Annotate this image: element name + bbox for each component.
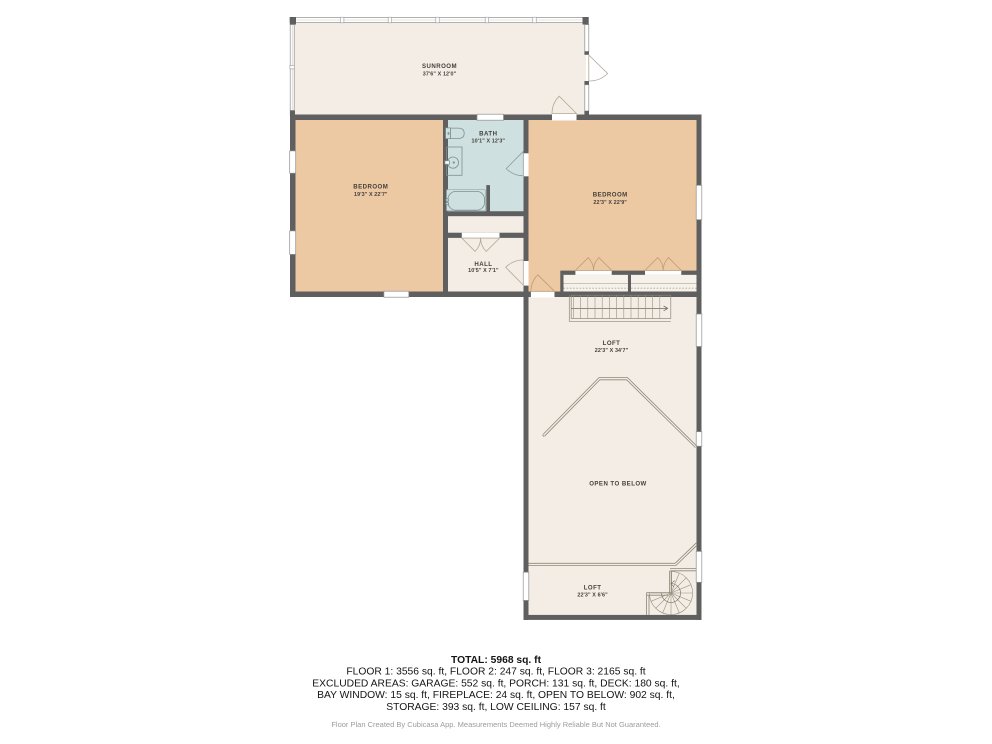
svg-text:10'1" X 12'3": 10'1" X 12'3" xyxy=(472,139,506,145)
svg-text:BAY WINDOW: 15 sq. ft, FIREPLA: BAY WINDOW: 15 sq. ft, FIREPLACE: 24 sq.… xyxy=(317,690,675,701)
svg-text:OPEN TO BELOW: OPEN TO BELOW xyxy=(589,480,647,487)
svg-text:LOFT: LOFT xyxy=(584,585,602,592)
svg-text:BEDROOM: BEDROOM xyxy=(593,191,628,198)
svg-text:Floor Plan Created By Cubicasa: Floor Plan Created By Cubicasa App. Meas… xyxy=(331,720,660,729)
svg-text:STORAGE: 393 sq. ft, LOW CEILI: STORAGE: 393 sq. ft, LOW CEILING: 157 sq… xyxy=(386,702,606,713)
svg-text:TOTAL: 5968 sq. ft: TOTAL: 5968 sq. ft xyxy=(451,655,542,666)
svg-text:22'3" X 6'6": 22'3" X 6'6" xyxy=(577,593,608,599)
svg-text:19'3" X 22'7": 19'3" X 22'7" xyxy=(354,192,388,198)
svg-text:22'3" X 22'9": 22'3" X 22'9" xyxy=(593,200,627,206)
svg-text:10'5" X 7'1": 10'5" X 7'1" xyxy=(468,268,499,274)
svg-text:LOFT: LOFT xyxy=(603,340,621,347)
svg-text:37'6" X 12'0": 37'6" X 12'0" xyxy=(423,71,457,77)
svg-text:SUNROOM: SUNROOM xyxy=(422,63,457,70)
svg-text:22'3" X 34'7": 22'3" X 34'7" xyxy=(595,348,629,354)
svg-text:EXCLUDED AREAS: GARAGE: 552 sq: EXCLUDED AREAS: GARAGE: 552 sq. ft, PORC… xyxy=(312,678,679,689)
svg-text:FLOOR 1: 3556 sq. ft, FLOOR 2:: FLOOR 1: 3556 sq. ft, FLOOR 2: 247 sq. f… xyxy=(346,667,645,678)
svg-text:BEDROOM: BEDROOM xyxy=(353,184,388,191)
svg-text:HALL: HALL xyxy=(474,261,492,268)
svg-text:BATH: BATH xyxy=(479,130,497,137)
